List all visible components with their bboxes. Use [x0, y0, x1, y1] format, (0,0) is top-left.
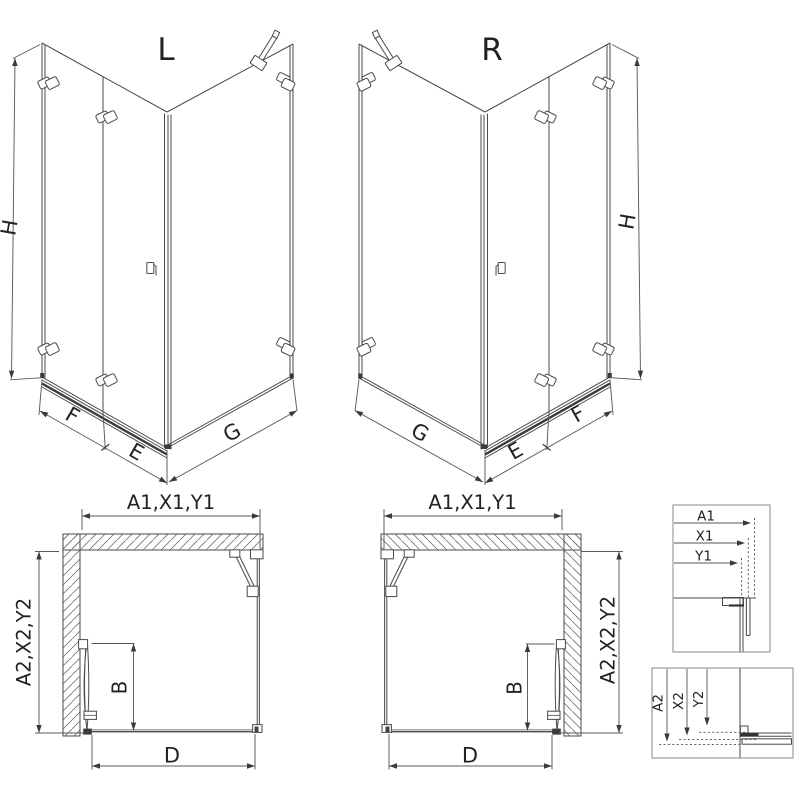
- plan-right-dim-door-label: B: [503, 681, 527, 695]
- iso-view-left: L H F E G: [0, 30, 298, 485]
- detail-box-width: A1 X1 Y1: [673, 505, 770, 652]
- detail-width-profile-section: [674, 598, 757, 652]
- plan-right-dim-front-label: D: [462, 744, 478, 768]
- detail-width-label-x1: X1: [696, 529, 714, 545]
- iso-right-dim-f-label: F: [567, 401, 589, 428]
- iso-right-linework: [354, 30, 644, 485]
- iso-right-variant-label: R: [481, 32, 503, 68]
- plan-left-dim-top-label: A1,X1,Y1: [127, 491, 215, 514]
- iso-right-dim-g-label: G: [407, 418, 433, 447]
- iso-left-linework: [9, 30, 299, 485]
- detail-depth-profile-section: [740, 726, 792, 744]
- plan-left-dim-door-label: B: [108, 681, 132, 695]
- plan-left-dim-front-label: D: [164, 744, 180, 768]
- iso-left-variant-label: L: [157, 32, 175, 68]
- iso-right-dim-h-label: H: [614, 212, 640, 232]
- plan-left-dim-side-label: A2,X2,Y2: [13, 598, 36, 686]
- detail-depth-label-x2: X2: [671, 692, 687, 710]
- detail-box-depth: A2 X2 Y2: [651, 668, 794, 758]
- detail-width-frame: [673, 505, 770, 652]
- diagram-canvas: L H F E G R H F E G A1,X1,Y1 A2,X2,Y2 B …: [0, 0, 800, 800]
- detail-width-label-y1: Y1: [694, 549, 712, 565]
- plan-right-dim-top-label: A1,X1,Y1: [428, 491, 516, 514]
- detail-width-label-a1: A1: [697, 509, 715, 525]
- plan-left-linework: [63, 509, 263, 770]
- iso-left-dim-g-label: G: [219, 418, 245, 447]
- plan-view-right: A1,X1,Y1 A2,X2,Y2 B D: [381, 491, 623, 770]
- plan-right-dim-side-label: A2,X2,Y2: [597, 596, 620, 684]
- iso-left-dim-h-label: H: [0, 218, 23, 238]
- detail-depth-label-y2: Y2: [691, 691, 707, 709]
- detail-depth-label-a2: A2: [651, 694, 667, 712]
- plan-right-linework: [381, 509, 581, 770]
- plan-view-left: A1,X1,Y1 A2,X2,Y2 B D: [13, 491, 264, 770]
- detail-width-reference-dashes: [742, 518, 755, 599]
- iso-view-right: R H F E G: [354, 30, 644, 485]
- shower-enclosure-technical-drawing: L H F E G R H F E G A1,X1,Y1 A2,X2,Y2 B …: [0, 0, 800, 800]
